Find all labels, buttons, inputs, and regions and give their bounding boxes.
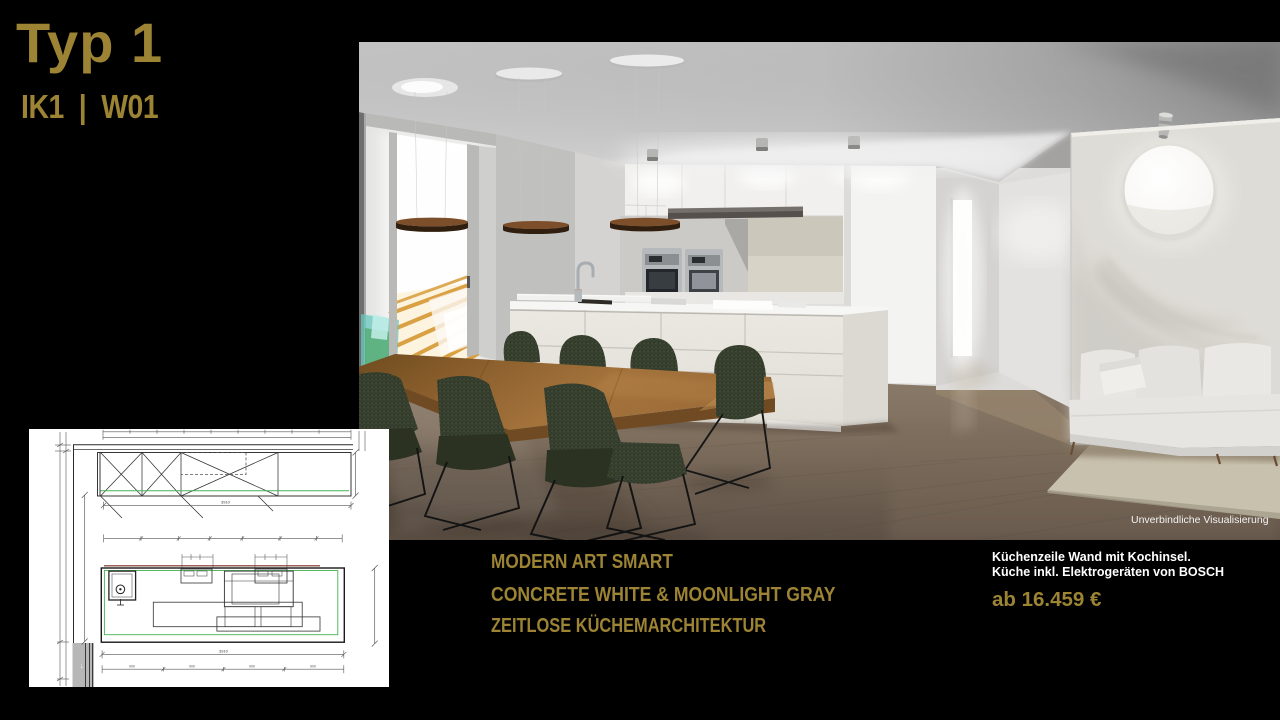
- svg-text:↓: ↓: [80, 663, 84, 670]
- svg-text:3910: 3910: [219, 648, 229, 653]
- svg-text:3910: 3910: [221, 500, 231, 505]
- svg-text:900: 900: [189, 665, 195, 669]
- svg-text:900: 900: [310, 665, 316, 669]
- svg-text:900: 900: [249, 665, 255, 669]
- svg-text:900: 900: [129, 665, 135, 669]
